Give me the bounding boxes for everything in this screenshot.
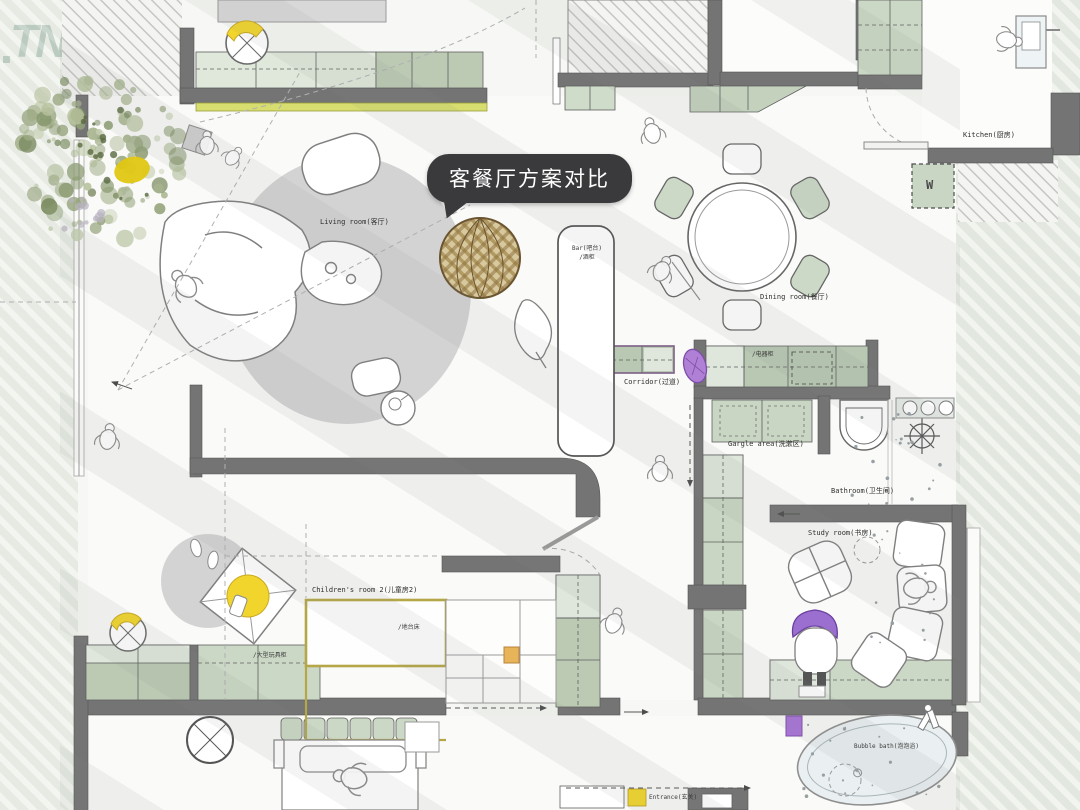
gargle-counter <box>712 400 812 442</box>
kitchen-label: Kitchen(厨房) <box>963 130 1015 140</box>
study-room-label: Study room(书房) <box>808 528 873 538</box>
storage-column-corridor <box>703 455 743 698</box>
gargle-area-label: Gargle area(洗漱区) <box>728 439 804 449</box>
floor-plan-screenshot: TN <box>0 0 1080 810</box>
washer-label: W <box>926 178 933 192</box>
corridor-label: Corridor(过道) <box>624 377 680 387</box>
side-table <box>381 391 415 425</box>
bar-label: Bar(吧台) /酒柜 <box>568 244 606 262</box>
children-room2-label: Children's room 2(儿童房2) <box>312 585 417 595</box>
dining-table <box>688 183 796 291</box>
floor-plan-canvas <box>0 0 1080 810</box>
platform-bed-label: /地台床 <box>398 622 420 631</box>
appliance-cabinet <box>706 346 868 387</box>
kitchen-cabinet <box>858 0 922 75</box>
bubble-bath-label: Bubble bath(泡泡浴) <box>854 741 919 750</box>
entrance-label: Entrance(玄关) <box>649 792 697 801</box>
toy-cabinet-label: /大型玩具柜 <box>253 650 287 659</box>
purple-box <box>786 716 802 736</box>
children-cabinet-column <box>556 575 600 707</box>
bathroom-label: Bathroom(卫生间) <box>831 486 894 496</box>
top-bed <box>218 0 386 22</box>
round-table-bedroom <box>187 717 233 763</box>
appliance-cabinet-label: /电器柜 <box>752 349 774 358</box>
dining-room-label: Dining room(餐厅) <box>760 292 829 302</box>
hanging-chair-top <box>226 21 268 64</box>
living-room-label: Living room(客厅) <box>320 217 389 227</box>
dresser <box>405 722 439 752</box>
hanging-chair-children <box>110 613 146 651</box>
rattan-ball <box>440 218 520 298</box>
toilet <box>840 400 888 450</box>
basin-counter <box>896 398 954 418</box>
